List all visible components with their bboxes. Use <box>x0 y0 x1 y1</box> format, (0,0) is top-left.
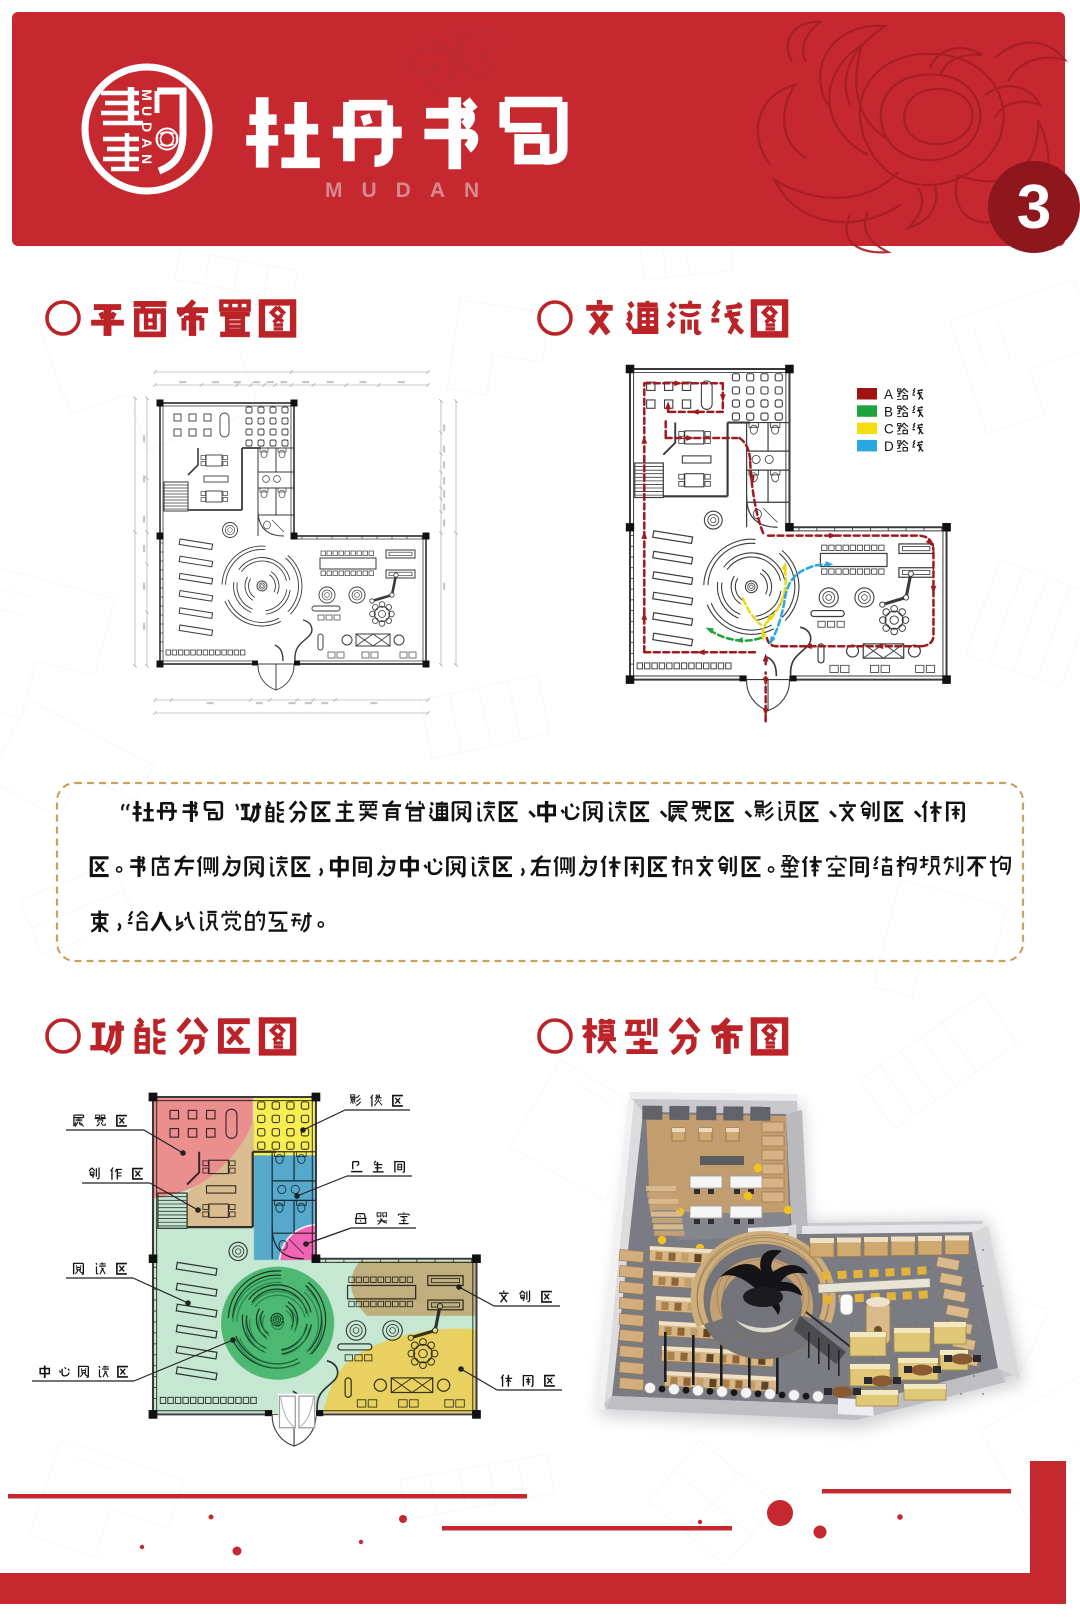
svg-text:A: A <box>139 138 155 148</box>
svg-text:3: 3 <box>1017 173 1051 242</box>
svg-text:C: C <box>884 422 894 437</box>
svg-text:U: U <box>139 106 155 116</box>
svg-text:MUDAN: MUDAN <box>325 179 498 202</box>
svg-text:D: D <box>884 439 894 454</box>
svg-text:A: A <box>884 387 893 402</box>
svg-text:B: B <box>884 404 893 419</box>
svg-text:M: M <box>139 89 155 101</box>
svg-text:D: D <box>139 122 155 132</box>
svg-text:N: N <box>139 154 155 164</box>
